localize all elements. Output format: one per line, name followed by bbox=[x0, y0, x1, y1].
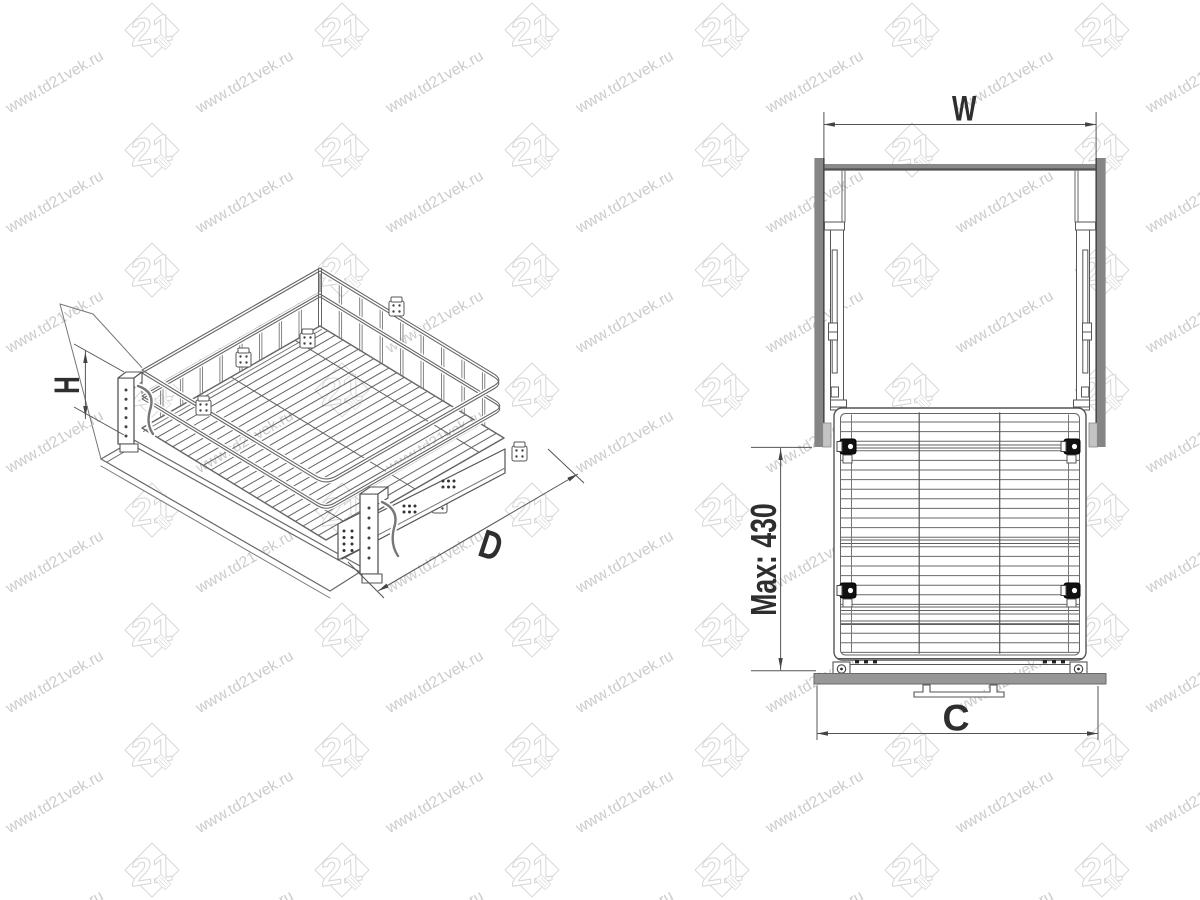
svg-text:www.td21vek.ru: www.td21vek.ru bbox=[1142, 47, 1200, 117]
svg-text:www.td21vek.ru: www.td21vek.ru bbox=[762, 287, 866, 357]
svg-text:www.td21vek.ru: www.td21vek.ru bbox=[572, 167, 676, 237]
svg-text:www.td21vek.ru: www.td21vek.ru bbox=[192, 47, 296, 117]
svg-text:www.td21vek.ru: www.td21vek.ru bbox=[1142, 647, 1200, 717]
svg-text:www.td21vek.ru: www.td21vek.ru bbox=[382, 647, 486, 717]
svg-text:www.td21vek.ru: www.td21vek.ru bbox=[382, 167, 486, 237]
svg-text:www.td21vek.ru: www.td21vek.ru bbox=[192, 167, 296, 237]
svg-text:www.td21vek.ru: www.td21vek.ru bbox=[2, 527, 106, 597]
svg-text:www.td21vek.ru: www.td21vek.ru bbox=[2, 767, 106, 837]
svg-text:www.td21vek.ru: www.td21vek.ru bbox=[382, 767, 486, 837]
svg-text:Max: 430: Max: 430 bbox=[743, 503, 784, 616]
svg-text:www.td21vek.ru: www.td21vek.ru bbox=[572, 287, 676, 357]
svg-text:www.td21vek.ru: www.td21vek.ru bbox=[1142, 407, 1200, 477]
svg-text:www.td21vek.ru: www.td21vek.ru bbox=[952, 287, 1056, 357]
svg-text:www.td21vek.ru: www.td21vek.ru bbox=[2, 647, 106, 717]
svg-text:www.td21vek.ru: www.td21vek.ru bbox=[1142, 767, 1200, 837]
svg-text:www.td21vek.ru: www.td21vek.ru bbox=[2, 47, 106, 117]
svg-text:www.td21vek.ru: www.td21vek.ru bbox=[572, 527, 676, 597]
svg-text:www.td21vek.ru: www.td21vek.ru bbox=[572, 647, 676, 717]
svg-text:www.td21vek.ru: www.td21vek.ru bbox=[2, 287, 106, 357]
svg-text:www.td21vek.ru: www.td21vek.ru bbox=[382, 47, 486, 117]
svg-text:www.td21vek.ru: www.td21vek.ru bbox=[382, 527, 486, 597]
svg-text:www.td21vek.ru: www.td21vek.ru bbox=[762, 767, 866, 837]
svg-text:www.td21vek.ru: www.td21vek.ru bbox=[1142, 527, 1200, 597]
svg-text:www.td21vek.ru: www.td21vek.ru bbox=[952, 167, 1056, 237]
svg-text:www.td21vek.ru: www.td21vek.ru bbox=[1142, 887, 1200, 900]
svg-text:www.td21vek.ru: www.td21vek.ru bbox=[762, 887, 866, 900]
svg-text:www.td21vek.ru: www.td21vek.ru bbox=[1142, 287, 1200, 357]
svg-text:www.td21vek.ru: www.td21vek.ru bbox=[572, 767, 676, 837]
svg-text:www.td21vek.ru: www.td21vek.ru bbox=[952, 887, 1056, 900]
svg-text:www.td21vek.ru: www.td21vek.ru bbox=[572, 407, 676, 477]
svg-text:H: H bbox=[49, 376, 87, 394]
svg-text:www.td21vek.ru: www.td21vek.ru bbox=[382, 887, 486, 900]
svg-text:www.td21vek.ru: www.td21vek.ru bbox=[572, 47, 676, 117]
svg-text:www.td21vek.ru: www.td21vek.ru bbox=[762, 167, 866, 237]
svg-text:www.td21vek.ru: www.td21vek.ru bbox=[192, 767, 296, 837]
svg-text:www.td21vek.ru: www.td21vek.ru bbox=[1142, 167, 1200, 237]
svg-text:www.td21vek.ru: www.td21vek.ru bbox=[192, 887, 296, 900]
svg-text:www.td21vek.ru: www.td21vek.ru bbox=[762, 47, 866, 117]
svg-text:www.td21vek.ru: www.td21vek.ru bbox=[952, 767, 1056, 837]
svg-text:www.td21vek.ru: www.td21vek.ru bbox=[2, 167, 106, 237]
svg-text:C: C bbox=[942, 697, 969, 739]
svg-text:www.td21vek.ru: www.td21vek.ru bbox=[2, 407, 106, 477]
svg-text:www.td21vek.ru: www.td21vek.ru bbox=[572, 887, 676, 900]
svg-text:www.td21vek.ru: www.td21vek.ru bbox=[192, 647, 296, 717]
svg-text:www.td21vek.ru: www.td21vek.ru bbox=[2, 887, 106, 900]
svg-text:W: W bbox=[952, 89, 977, 129]
